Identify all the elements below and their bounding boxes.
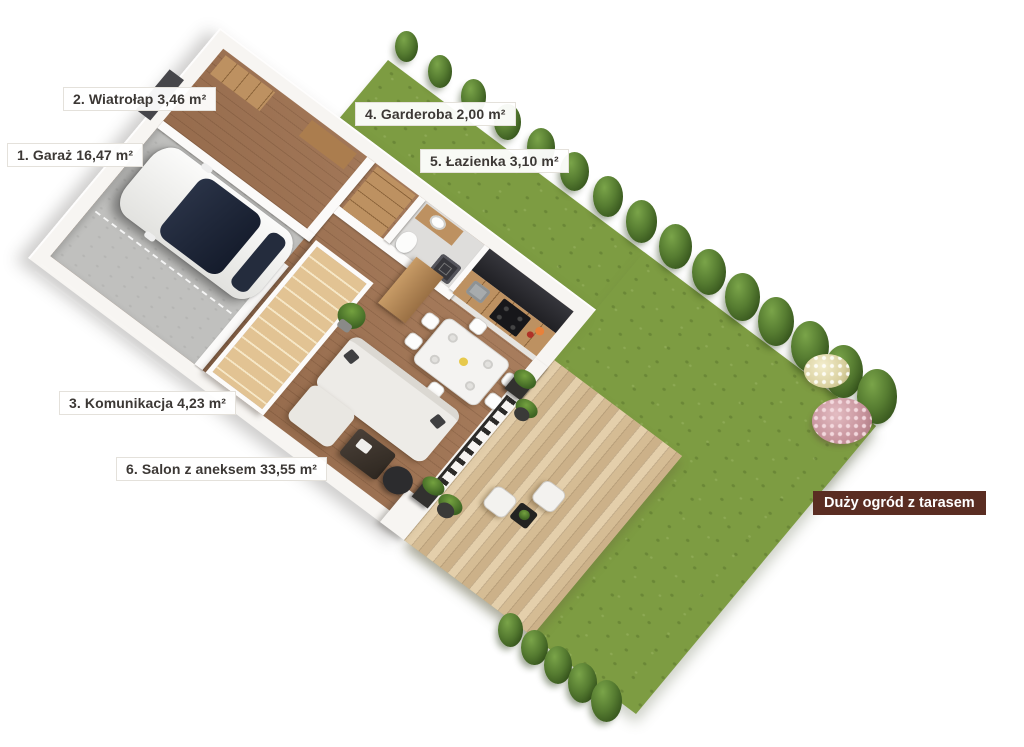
plate [428, 353, 442, 366]
table-plant [517, 508, 532, 523]
conifer-tree [725, 273, 761, 321]
conifer-tree [395, 31, 418, 62]
conifer-tree [626, 200, 658, 243]
conifer-tree [692, 249, 726, 295]
conifer-tree [593, 176, 624, 217]
conifer-tree [758, 297, 795, 347]
plate [481, 358, 495, 371]
room-label-garaz: 1. Garaż 16,47 m² [7, 143, 143, 167]
floorplan-scene: 1. Garaż 16,47 m² 2. Wiatrołap 3,46 m² 3… [0, 0, 1024, 747]
table-flowers [457, 356, 470, 368]
garden-badge: Duży ogród z tarasem [813, 491, 986, 515]
room-label-wiatrolap: 2. Wiatrołap 3,46 m² [63, 87, 216, 111]
conifer-tree [428, 55, 452, 88]
room-label-lazienka: 5. Łazienka 3,10 m² [420, 149, 569, 173]
room-label-salon: 6. Salon z aneksem 33,55 m² [116, 457, 327, 481]
room-label-garderoba: 4. Garderoba 2,00 m² [355, 102, 516, 126]
plate [446, 331, 460, 344]
plate [463, 379, 477, 392]
conifer-tree [791, 321, 829, 372]
conifer-tree [659, 224, 692, 269]
tray [355, 438, 373, 454]
throw-pillow [429, 414, 446, 430]
room-label-komunikacja: 3. Komunikacja 4,23 m² [59, 391, 236, 415]
throw-pillow [343, 349, 360, 365]
